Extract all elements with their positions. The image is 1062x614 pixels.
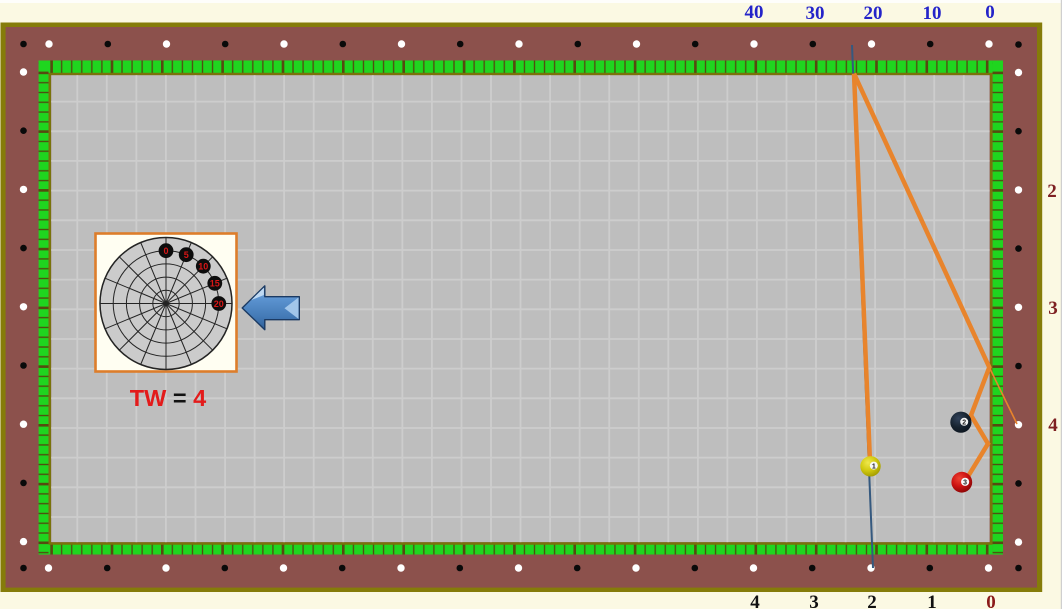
svg-text:2: 2 (962, 420, 966, 427)
svg-text:4: 4 (750, 592, 760, 609)
svg-text:2: 2 (1047, 181, 1057, 202)
svg-text:3: 3 (1048, 298, 1058, 319)
svg-text:1: 1 (872, 463, 876, 470)
svg-text:40: 40 (745, 2, 764, 23)
svg-text:3: 3 (809, 592, 819, 609)
svg-text:5: 5 (184, 250, 189, 260)
svg-text:0: 0 (985, 2, 995, 23)
svg-text:1: 1 (927, 592, 937, 609)
svg-text:15: 15 (210, 279, 220, 289)
svg-text:20: 20 (864, 3, 883, 24)
svg-text:0: 0 (986, 592, 996, 609)
svg-text:20: 20 (214, 299, 224, 309)
svg-text:0: 0 (163, 246, 168, 256)
svg-text:3: 3 (963, 480, 967, 487)
svg-text:10: 10 (923, 3, 942, 24)
svg-text:2: 2 (867, 592, 877, 609)
svg-text:TW = 4: TW = 4 (130, 385, 206, 411)
svg-text:30: 30 (806, 3, 825, 24)
svg-text:4: 4 (1048, 415, 1058, 436)
svg-text:10: 10 (198, 262, 208, 272)
